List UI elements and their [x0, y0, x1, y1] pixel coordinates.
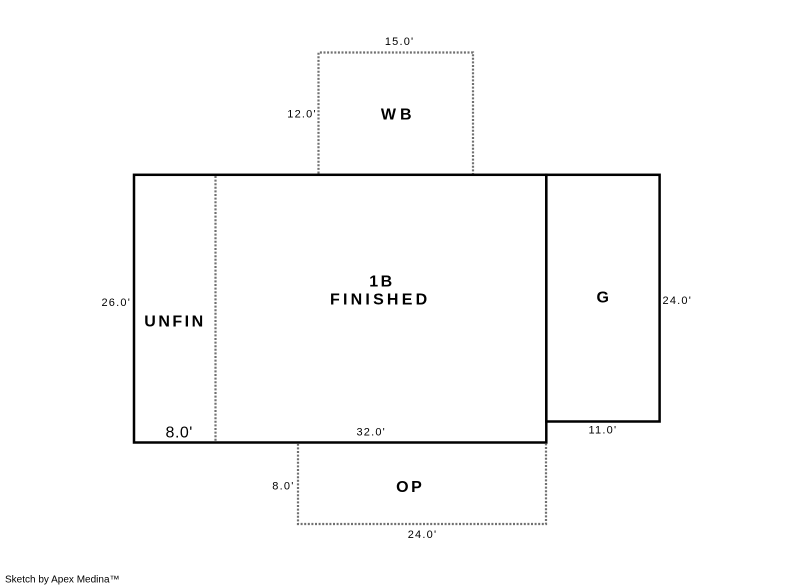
svg-text:8.0': 8.0' — [166, 425, 193, 442]
svg-text:15.0': 15.0' — [385, 36, 415, 48]
svg-text:8.0': 8.0' — [272, 481, 294, 493]
svg-text:Sketch by Apex Medina™: Sketch by Apex Medina™ — [5, 575, 120, 586]
svg-text:1B: 1B — [369, 274, 394, 291]
svg-text:32.0': 32.0' — [356, 426, 386, 438]
svg-text:G: G — [597, 290, 612, 307]
svg-text:24.0': 24.0' — [408, 529, 438, 541]
svg-text:12.0': 12.0' — [287, 108, 317, 120]
svg-text:WB: WB — [381, 107, 416, 124]
svg-text:FINISHED: FINISHED — [330, 292, 430, 309]
svg-text:11.0': 11.0' — [589, 425, 618, 437]
svg-text:24.0': 24.0' — [663, 295, 693, 307]
svg-text:UNFIN: UNFIN — [144, 314, 205, 331]
svg-text:OP: OP — [396, 479, 424, 496]
svg-text:26.0': 26.0' — [101, 297, 131, 309]
